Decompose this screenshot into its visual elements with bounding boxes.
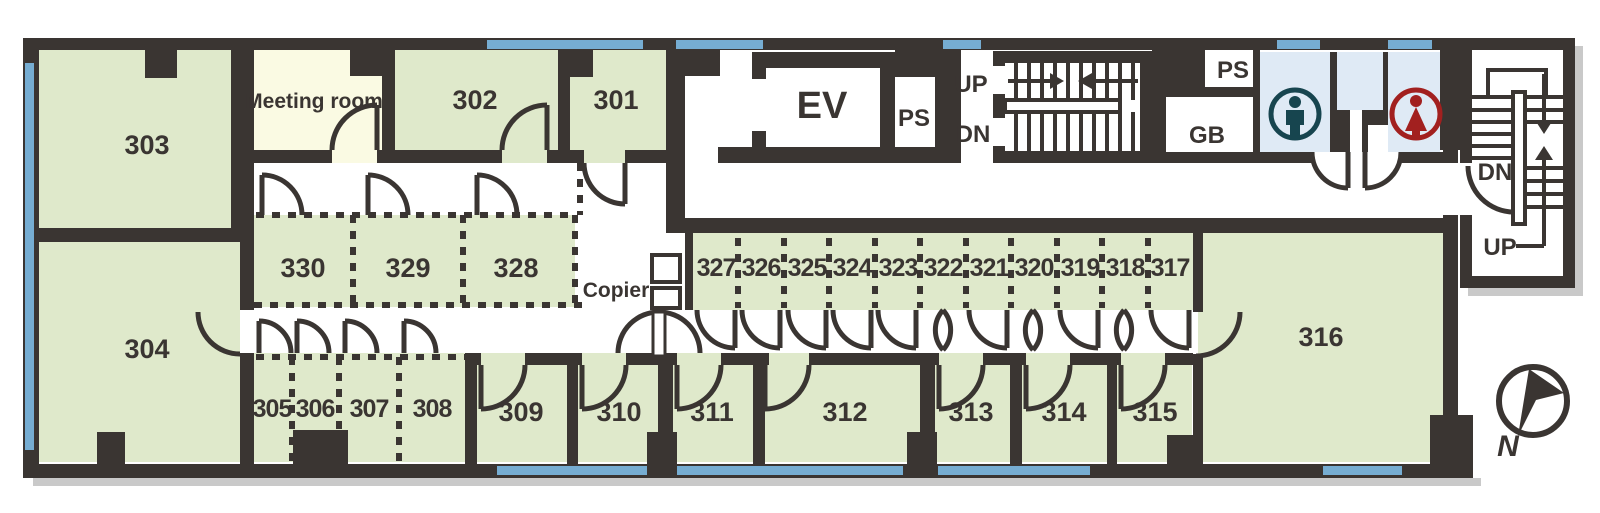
wall-segment: [570, 150, 584, 163]
wall-segment: [1368, 110, 1388, 125]
wall-segment: [1022, 353, 1026, 365]
compass: [1499, 367, 1567, 436]
wall-pillar: [647, 432, 677, 464]
window: [677, 466, 903, 475]
room-label-324: 324: [833, 254, 873, 282]
compass-north-label: N: [1497, 430, 1520, 463]
wall-segment: [1165, 353, 1193, 365]
door-arc-325: [788, 310, 826, 348]
wall-segment: [1205, 87, 1260, 97]
stairs-up-label: UP: [954, 71, 987, 98]
wall-segment: [1070, 353, 1107, 365]
door-lens-320: [1025, 310, 1040, 350]
window: [497, 466, 647, 475]
floor-plan-canvas: 303 Meeting room 302 301 EV PS UP DN PS …: [0, 0, 1600, 513]
door-arc-319: [1060, 310, 1098, 348]
wall-segment: [578, 353, 582, 365]
wall-segment: [673, 353, 677, 365]
meeting-room-label: Meeting room: [245, 90, 383, 113]
door-arc-324: [833, 310, 871, 348]
room-label-328: 328: [493, 253, 538, 283]
shadow-stairwell-right: [1575, 46, 1583, 296]
door-arc-301: [584, 163, 625, 204]
room-label-303: 303: [124, 130, 169, 160]
stair-center-rail: [1513, 92, 1525, 224]
garbage-label: GB: [1189, 122, 1225, 149]
wall-316-left-upper: [1193, 233, 1203, 312]
wall-pillar: [907, 432, 937, 464]
room-label-301: 301: [593, 85, 638, 115]
wall-pillar: [145, 50, 177, 78]
stairs-top-door-gap-up: [993, 66, 1005, 94]
wall-segment: [567, 353, 578, 464]
stairs-dn-label: DN: [956, 121, 991, 148]
room-label-304: 304: [124, 334, 169, 364]
wall-corridor-south: [685, 218, 1198, 233]
room-label-315: 315: [1132, 397, 1177, 427]
wall-segment: [547, 150, 558, 163]
room-label-310: 310: [596, 397, 641, 427]
wall-segment: [935, 353, 939, 365]
room-label-320: 320: [1015, 254, 1054, 282]
window: [1388, 40, 1432, 49]
wall-segment: [525, 353, 567, 365]
room-label-329: 329: [385, 253, 430, 283]
window: [938, 466, 1090, 475]
wall-segment: [1401, 152, 1443, 163]
wall-segment: [1383, 52, 1388, 110]
wall-segment: [1330, 52, 1337, 110]
door-arc-307: [345, 321, 377, 353]
window: [1277, 40, 1320, 49]
wall-pillar: [560, 50, 593, 77]
door-arc-317: [1151, 310, 1189, 348]
room-label-323: 323: [879, 254, 918, 282]
shadow-stairwell-bottom: [1468, 288, 1583, 296]
floor-plan: 303 Meeting room 302 301 EV PS UP DN PS …: [0, 0, 1600, 513]
door-arc-330: [262, 175, 302, 215]
room-label-307: 307: [350, 395, 389, 423]
room-label-322: 322: [924, 254, 963, 282]
room-label-317: 317: [1151, 254, 1190, 282]
window: [25, 63, 34, 450]
room-label-308: 308: [413, 395, 453, 423]
copier-machines: [652, 255, 680, 356]
wall-segment: [377, 150, 382, 163]
room-label-319: 319: [1061, 254, 1100, 282]
wall-above-ps: [895, 50, 935, 77]
wall-right-top-block: [1440, 38, 1460, 150]
wall-segment: [625, 150, 666, 163]
wall-segment: [1152, 97, 1166, 152]
wall-pillar: [1167, 435, 1193, 464]
door-arc-308: [404, 321, 436, 353]
wall-segment: [231, 50, 254, 235]
female-icon-head: [1410, 95, 1422, 107]
wall-ev-bottom: [718, 147, 961, 163]
room-label-311: 311: [690, 397, 734, 427]
wall-segment: [1152, 152, 1260, 163]
window: [1323, 466, 1402, 475]
wall-segment: [1253, 50, 1260, 152]
wall-segment: [685, 233, 693, 310]
wall-corner-block: [1430, 415, 1473, 468]
wall-segment: [721, 353, 753, 365]
room-label-318: 318: [1106, 254, 1146, 282]
door-arc-328: [477, 175, 517, 215]
pipe-shaft-label-2: PS: [1217, 57, 1249, 84]
door-arc-323: [878, 310, 916, 348]
copier-unit-2: [652, 288, 680, 308]
window: [943, 40, 981, 49]
wall-ev-left-upper: [752, 52, 766, 79]
elevator-label: EV: [797, 85, 848, 127]
room-label-314: 314: [1041, 397, 1086, 427]
wall-segment: [983, 353, 1010, 365]
door-lens-318: [1116, 310, 1131, 350]
wall-segment: [395, 150, 502, 163]
wall-segment: [240, 228, 254, 310]
wall-segment: [1362, 110, 1368, 152]
wall-316-top: [1198, 218, 1446, 233]
door-arc-306: [297, 321, 329, 353]
room-label-306: 306: [296, 395, 335, 423]
wall-segment: [477, 353, 481, 365]
wall-segment: [39, 228, 245, 242]
door-arc-toilet-male: [1312, 152, 1348, 188]
wall-segment: [1117, 353, 1121, 365]
wall-segment: [809, 353, 920, 365]
copier-unit-1: [652, 255, 680, 282]
room-label-316: 316: [1298, 322, 1343, 352]
wall-ev-top: [752, 52, 895, 68]
door-arc-329: [368, 175, 408, 215]
room-label-325: 325: [788, 254, 828, 282]
room-label-302: 302: [452, 85, 497, 115]
pipe-shaft-label-1: PS: [898, 105, 930, 132]
wall-segment: [1152, 50, 1205, 97]
wall-pillar: [97, 432, 125, 464]
copier-label: Copier: [583, 279, 650, 302]
room-label-321: 321: [970, 254, 1010, 282]
door-arc-321: [969, 310, 1007, 348]
wall-segment: [765, 353, 769, 365]
room-label-326: 326: [742, 254, 781, 282]
wall-segment: [247, 150, 332, 163]
wall-segment: [1107, 353, 1117, 464]
wall-segment: [1330, 110, 1350, 152]
shadow-bottom: [33, 478, 1481, 486]
room-label-309: 309: [498, 397, 543, 427]
room-label-327: 327: [697, 254, 736, 282]
wall-segment: [465, 353, 477, 464]
room-label-305: 305: [253, 395, 293, 423]
room-label-312: 312: [822, 397, 867, 427]
window: [676, 40, 763, 49]
door-arc-326: [742, 310, 780, 348]
toilet-middle-floor: [1337, 52, 1383, 110]
male-icon-head: [1289, 96, 1301, 108]
door-arc-305: [259, 321, 291, 353]
wall-segment: [1010, 353, 1022, 464]
stairwell-up-label: UP: [1483, 234, 1516, 261]
wall-ev-right: [880, 52, 895, 163]
wall-segment: [1257, 152, 1312, 163]
stairwell-dn-label: DN: [1478, 159, 1513, 186]
window: [487, 40, 643, 49]
stairs-top-door-gap-dn: [993, 118, 1005, 146]
door-arc-327: [697, 310, 735, 348]
door-arc-toilet-female: [1365, 152, 1401, 188]
room-label-330: 330: [280, 253, 325, 283]
room-label-313: 313: [948, 397, 993, 427]
wall-316-left-lower: [1193, 354, 1203, 464]
toilet-passage: [1350, 110, 1362, 152]
door-lens-322: [935, 310, 950, 350]
door-post: [653, 312, 665, 356]
wall-pillar: [350, 38, 395, 76]
stair-landing-rail: [1005, 100, 1120, 112]
